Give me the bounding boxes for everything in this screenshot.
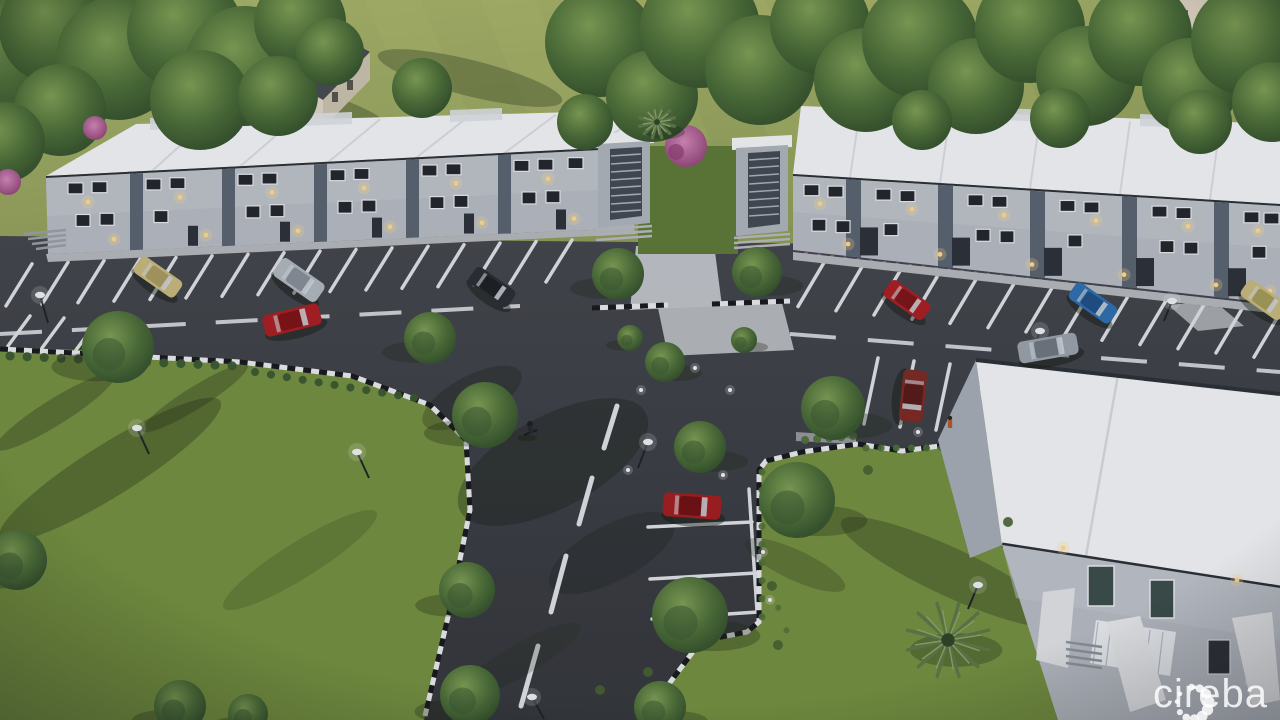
vignette <box>0 0 1280 720</box>
watermark: cireba <box>1153 678 1268 714</box>
scene-svg <box>0 0 1280 720</box>
cireba-logo-icon <box>1167 678 1219 720</box>
render-canvas: cireba <box>0 0 1280 720</box>
